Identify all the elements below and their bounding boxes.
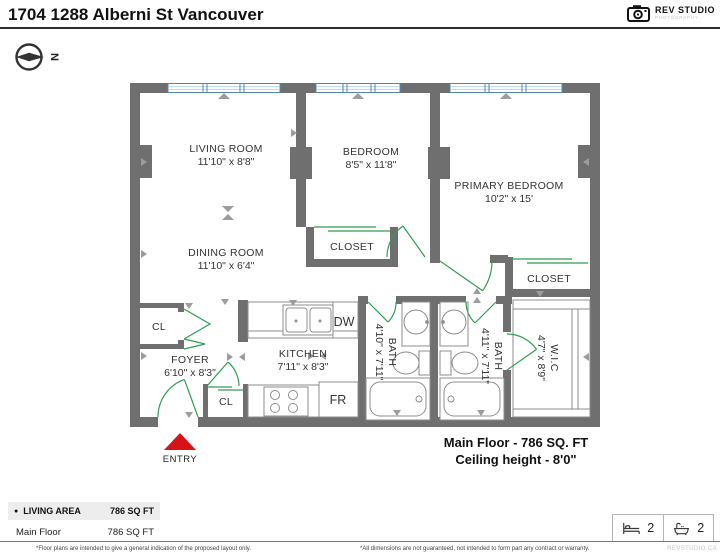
area-summary-table: ● LIVING AREA 786 SQ FT Main Floor 786 S… xyxy=(8,502,160,540)
primary-bedroom-label: PRIMARY BEDROOM xyxy=(454,180,563,192)
toilet-tank xyxy=(440,351,451,375)
bedroom-closet-label: CLOSET xyxy=(330,241,374,253)
toilet-bowl xyxy=(452,352,478,374)
kitchen-dims: 7'11" x 8'3" xyxy=(278,361,329,373)
beds-count: 2 xyxy=(647,521,654,535)
bath1-sink xyxy=(404,310,428,334)
bedroom-dims: 8'5" x 11'8" xyxy=(346,159,397,171)
entry-arrow xyxy=(164,433,196,450)
bath1-label-group: BATH 4'10" x 7'11" xyxy=(373,324,398,381)
bath2-dims: 4'11" x 7'11" xyxy=(479,328,491,384)
bath2-door xyxy=(466,302,496,323)
bath1-dims: 4'10" x 7'11" xyxy=(373,324,385,381)
bath1-label: BATH xyxy=(386,338,398,366)
foyer-dims: 6'10" x 8'3" xyxy=(164,367,216,379)
summary-header-label: LIVING AREA xyxy=(23,506,81,516)
bath2-label: BATH xyxy=(492,342,504,370)
baths-count: 2 xyxy=(697,521,704,535)
toilet-tank xyxy=(419,351,430,375)
footnote-right: *All dimensions are not guaranteed, not … xyxy=(360,546,589,552)
wic-dims: 4'7" x 8'9" xyxy=(535,335,547,381)
bath-icon xyxy=(672,521,691,536)
window-band xyxy=(316,84,400,93)
entry-label: ENTRY xyxy=(163,454,198,465)
ceiling-height: Ceiling height - 8'0" xyxy=(455,452,576,467)
entry-door xyxy=(158,379,198,417)
footnote-left: *Floor plans are intended to give a gene… xyxy=(36,546,251,552)
summary-row-value: 786 SQ FT xyxy=(108,527,154,538)
primary-closet-label: CLOSET xyxy=(527,273,571,285)
wic-label: W.I.C xyxy=(548,344,560,371)
baths-stat: 2 xyxy=(663,515,714,541)
fridge-label: FR xyxy=(330,393,347,407)
bedroom-label: BEDROOM xyxy=(343,146,399,158)
foyer-closet-label: CL xyxy=(152,321,166,333)
beds-stat: 2 xyxy=(613,515,663,541)
summary-row-label: Main Floor xyxy=(16,527,61,538)
summary-row: Main Floor 786 SQ FT xyxy=(8,524,160,540)
primary-door xyxy=(440,261,492,291)
footer-divider xyxy=(0,541,720,542)
windows xyxy=(168,84,562,93)
primary-bedroom-dims: 10'2" x 15' xyxy=(485,193,533,205)
foyer-label: FOYER xyxy=(171,354,209,366)
brand-watermark: REVSTUDIO.CA xyxy=(667,546,717,552)
stove xyxy=(264,387,308,416)
window-band xyxy=(450,84,562,93)
window-band xyxy=(168,84,280,93)
bed-bath-stats: 2 2 xyxy=(612,514,714,542)
dining-room-dims: 11'10" x 6'4" xyxy=(198,260,255,272)
bath2-sink xyxy=(442,310,466,334)
living-room-label: LIVING ROOM xyxy=(189,143,262,155)
bullet-icon: ● xyxy=(14,508,18,515)
dining-room-label: DINING ROOM xyxy=(188,247,264,259)
bath1-door xyxy=(368,302,396,322)
bath2-label-group: BATH 4'11" x 7'11" xyxy=(479,328,504,384)
floorplan-drawing: LIVING ROOM 11'10" x 8'8" BEDROOM 8'5" x… xyxy=(0,0,720,557)
bed-icon xyxy=(621,521,641,536)
kitchen-label: KITCHEN xyxy=(279,348,327,360)
dishwasher-label: DW xyxy=(334,315,355,329)
kitchen-closet-label: CL xyxy=(219,396,233,408)
summary-header-value: 786 SQ FT xyxy=(110,506,154,516)
wic-label-group: W.I.C 4'7" x 8'9" xyxy=(535,335,560,381)
bifold-door xyxy=(184,309,210,339)
summary-header-row: ● LIVING AREA 786 SQ FT xyxy=(8,502,160,520)
floor-title: Main Floor - 786 SQ. FT xyxy=(444,435,589,450)
living-room-dims: 11'10" x 8'8" xyxy=(198,156,255,168)
wic-door xyxy=(507,334,537,370)
floorplan-page: 1704 1288 Alberni St Vancouver REV STUDI… xyxy=(0,0,720,557)
